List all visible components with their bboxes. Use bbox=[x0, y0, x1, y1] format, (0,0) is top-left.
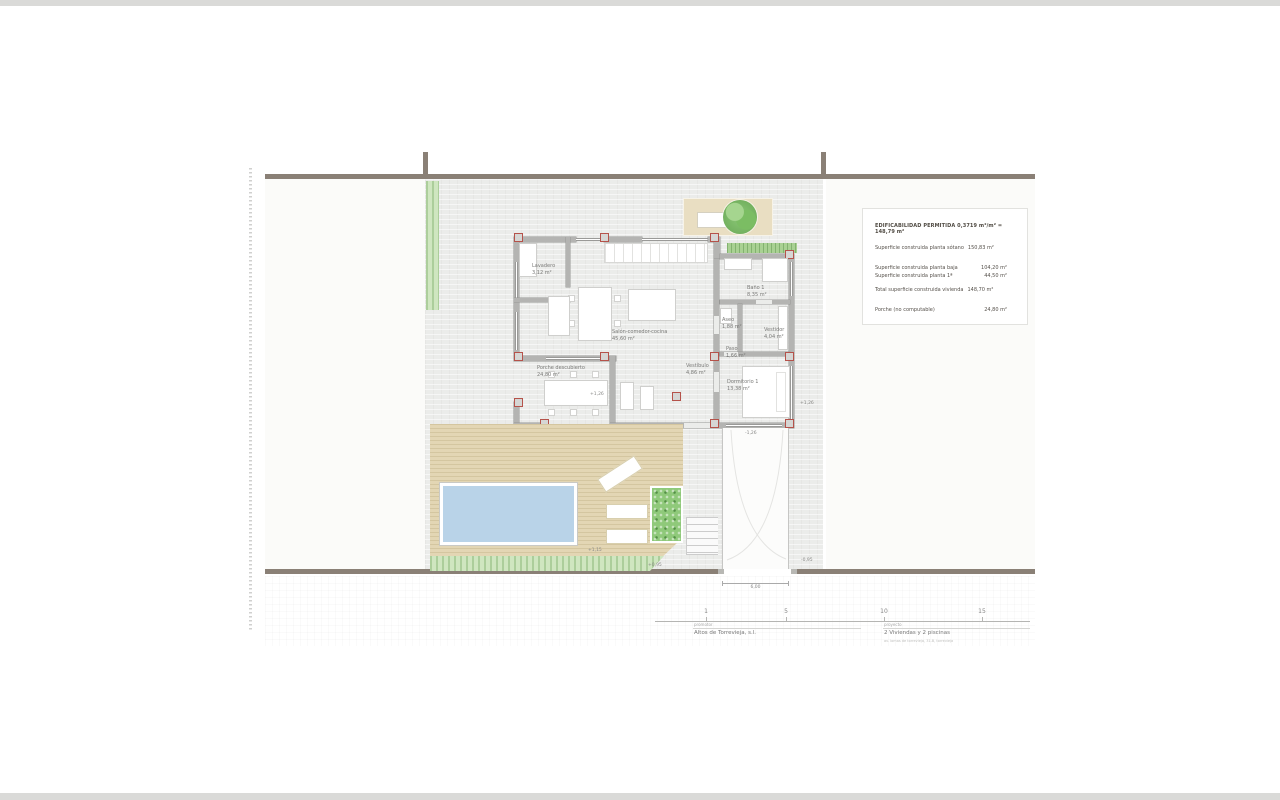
room-label-aseo: Aseo 1,88 m² bbox=[722, 317, 742, 331]
column bbox=[600, 233, 609, 242]
room-name: Aseo bbox=[722, 317, 734, 323]
project-label: proyecto bbox=[884, 622, 902, 627]
room-name: Salón-comedor-cocina bbox=[612, 329, 667, 335]
room-area: 4,86 m² bbox=[686, 370, 709, 377]
column bbox=[710, 233, 719, 242]
room-name: Vestíbulo bbox=[686, 363, 709, 369]
area-row: Superficie construida planta baja 104,20… bbox=[875, 265, 1017, 271]
room-label-porch: Porche descubierto 24,80 m² bbox=[537, 365, 585, 379]
chair bbox=[614, 295, 621, 302]
area-row: Porche (no computable) 24,80 m² bbox=[875, 307, 1017, 313]
vertical-disclaimer-text bbox=[249, 168, 252, 630]
column bbox=[514, 398, 523, 407]
room-area: 45,60 m² bbox=[612, 336, 667, 343]
scale-tick bbox=[786, 617, 787, 621]
room-label-bath: Baño 1 8,35 m² bbox=[747, 285, 767, 299]
area-value: 44,50 m² bbox=[984, 273, 1017, 279]
buildability-header: EDIFICABILIDAD PERMITIDA 0,3719 m²/m² = … bbox=[875, 223, 1019, 235]
room-area: 1,88 m² bbox=[722, 324, 742, 331]
promoter-name: Altos de Torrevieja, s.l. bbox=[694, 630, 756, 636]
sofa bbox=[548, 296, 570, 336]
room-label-living: Salón-comedor-cocina 45,60 m² bbox=[612, 329, 667, 343]
room-area: 3,12 m² bbox=[532, 270, 555, 277]
level-marker-ramp-top: -1,26 bbox=[745, 431, 757, 436]
footer-rule bbox=[883, 628, 1030, 629]
scale-number: 10 bbox=[877, 608, 891, 615]
column bbox=[710, 419, 719, 428]
shower bbox=[762, 258, 788, 282]
neighbor-plot-left bbox=[265, 179, 425, 569]
promoter-label: promotor bbox=[694, 622, 713, 627]
area-row: Superficie construida planta 1ª 44,50 m² bbox=[875, 273, 1017, 279]
room-label-hall: Vestíbulo 4,86 m² bbox=[686, 363, 709, 377]
room-name: Lavadero bbox=[532, 263, 555, 269]
room-label-laundry: Lavadero 3,12 m² bbox=[532, 263, 555, 277]
room-name: Baño 1 bbox=[747, 285, 765, 291]
room-area: 13,38 m² bbox=[727, 386, 758, 393]
porch-chair bbox=[592, 371, 599, 378]
door-gap-bath bbox=[756, 300, 772, 304]
wall-bath-south bbox=[720, 300, 790, 304]
door-gap-vestibule bbox=[714, 372, 719, 392]
tree-icon bbox=[723, 200, 757, 234]
window-bath bbox=[790, 262, 793, 296]
area-value: 150,83 m² bbox=[968, 245, 994, 251]
area-value: 104,20 m² bbox=[981, 265, 1017, 271]
floor-plan-sheet: 6,00 Lavadero 3,12 m² Salón-comedor-coci… bbox=[0, 0, 1280, 800]
area-row: Superficie construida planta sótano 150,… bbox=[875, 245, 1017, 251]
bath-vanity bbox=[724, 258, 752, 270]
area-value: 24,80 m² bbox=[984, 307, 1017, 313]
scale-number: 5 bbox=[779, 608, 793, 615]
porch-chair bbox=[592, 409, 599, 416]
level-marker-steps: +0,95 bbox=[648, 563, 662, 568]
lawn-strip bbox=[430, 556, 664, 571]
room-name: Porche descubierto bbox=[537, 365, 585, 371]
window-bedroom-south bbox=[726, 424, 782, 427]
scale-tick bbox=[706, 617, 707, 621]
bed-pillows bbox=[776, 372, 786, 412]
room-area: 24,80 m² bbox=[537, 372, 585, 379]
room-label-bedroom: Dormitorio 1 13,38 m² bbox=[727, 379, 758, 393]
bottom-letterbox bbox=[0, 793, 1280, 800]
wall-top-2 bbox=[604, 237, 642, 242]
area-label: Superficie construida planta sótano bbox=[875, 245, 964, 251]
scale-tick bbox=[884, 617, 885, 621]
window-west-1 bbox=[515, 262, 518, 300]
entrance-steps bbox=[686, 517, 718, 555]
level-marker-east: +1,26 bbox=[800, 401, 814, 406]
window-bedroom-east bbox=[790, 366, 793, 420]
area-label: Porche (no computable) bbox=[875, 307, 935, 313]
column bbox=[514, 233, 523, 242]
dimension-line bbox=[722, 583, 789, 584]
door-gap-paso bbox=[714, 316, 719, 334]
room-label-dressing: Vestidor 4,04 m² bbox=[764, 327, 784, 341]
window-west-2 bbox=[515, 312, 518, 350]
room-area: 8,35 m² bbox=[747, 292, 767, 299]
gate-post-right bbox=[791, 569, 797, 574]
wall-laundry-east bbox=[566, 237, 570, 287]
room-area: 1,66 m² bbox=[726, 353, 746, 360]
scale-number: 1 bbox=[699, 608, 713, 615]
window-top-2 bbox=[642, 238, 708, 241]
column bbox=[514, 352, 523, 361]
scale-number: 15 bbox=[975, 608, 989, 615]
boundary-stub-right bbox=[821, 152, 826, 174]
room-label-paso: Paso 1,66 m² bbox=[726, 346, 746, 360]
gate-post-left bbox=[718, 569, 724, 574]
room-area: 4,04 m² bbox=[764, 334, 784, 341]
sun-lounger bbox=[606, 529, 648, 544]
swimming-pool bbox=[440, 483, 577, 545]
gate-width-dimension: 6,00 bbox=[722, 585, 789, 590]
wall-spine bbox=[714, 259, 719, 423]
side-garden-strip bbox=[426, 181, 439, 310]
planter-bed bbox=[650, 486, 683, 543]
column bbox=[600, 352, 609, 361]
sun-lounger bbox=[606, 504, 648, 519]
boundary-stub-left bbox=[423, 152, 428, 174]
porch-chair bbox=[548, 409, 555, 416]
kitchen-counter bbox=[604, 243, 708, 263]
room-name: Paso bbox=[726, 346, 738, 352]
project-name: 2 Viviendas y 2 piscinas bbox=[884, 630, 950, 636]
wall-vestibule-west bbox=[610, 356, 615, 428]
area-row: Total superficie construida vivienda 148… bbox=[875, 287, 1017, 293]
project-address: av. lomas de torrevieja, 31-B, torreviej… bbox=[884, 639, 953, 643]
column bbox=[710, 352, 719, 361]
column bbox=[785, 419, 794, 428]
driveway-ramp bbox=[722, 428, 789, 569]
chair bbox=[614, 320, 621, 327]
area-value: 148,70 m² bbox=[967, 287, 993, 293]
column bbox=[672, 392, 681, 401]
armchair bbox=[640, 386, 654, 410]
boundary-wall-south-right bbox=[797, 569, 1035, 574]
boundary-wall-north bbox=[265, 174, 1035, 179]
kitchen-island bbox=[628, 289, 676, 321]
level-marker-deck: +1,15 bbox=[588, 548, 602, 553]
car-path-curves bbox=[723, 428, 790, 569]
level-marker-ramp-bottom: -0,95 bbox=[801, 558, 813, 563]
porch-chair bbox=[570, 409, 577, 416]
armchair bbox=[620, 382, 634, 410]
scale-tick bbox=[982, 617, 983, 621]
dining-table bbox=[578, 287, 612, 341]
porch-glass-doors bbox=[546, 357, 602, 360]
footer-rule bbox=[693, 628, 861, 629]
column bbox=[785, 352, 794, 361]
area-label: Superficie construida planta baja bbox=[875, 265, 958, 271]
area-label: Total superficie construida vivienda bbox=[875, 287, 963, 293]
room-name: Vestidor bbox=[764, 327, 784, 333]
area-label: Superficie construida planta 1ª bbox=[875, 273, 953, 279]
level-marker-porch: +1,26 bbox=[590, 392, 604, 397]
top-letterbox bbox=[0, 0, 1280, 6]
area-schedule-panel: EDIFICABILIDAD PERMITIDA 0,3719 m²/m² = … bbox=[862, 208, 1028, 325]
room-name: Dormitorio 1 bbox=[727, 379, 758, 385]
